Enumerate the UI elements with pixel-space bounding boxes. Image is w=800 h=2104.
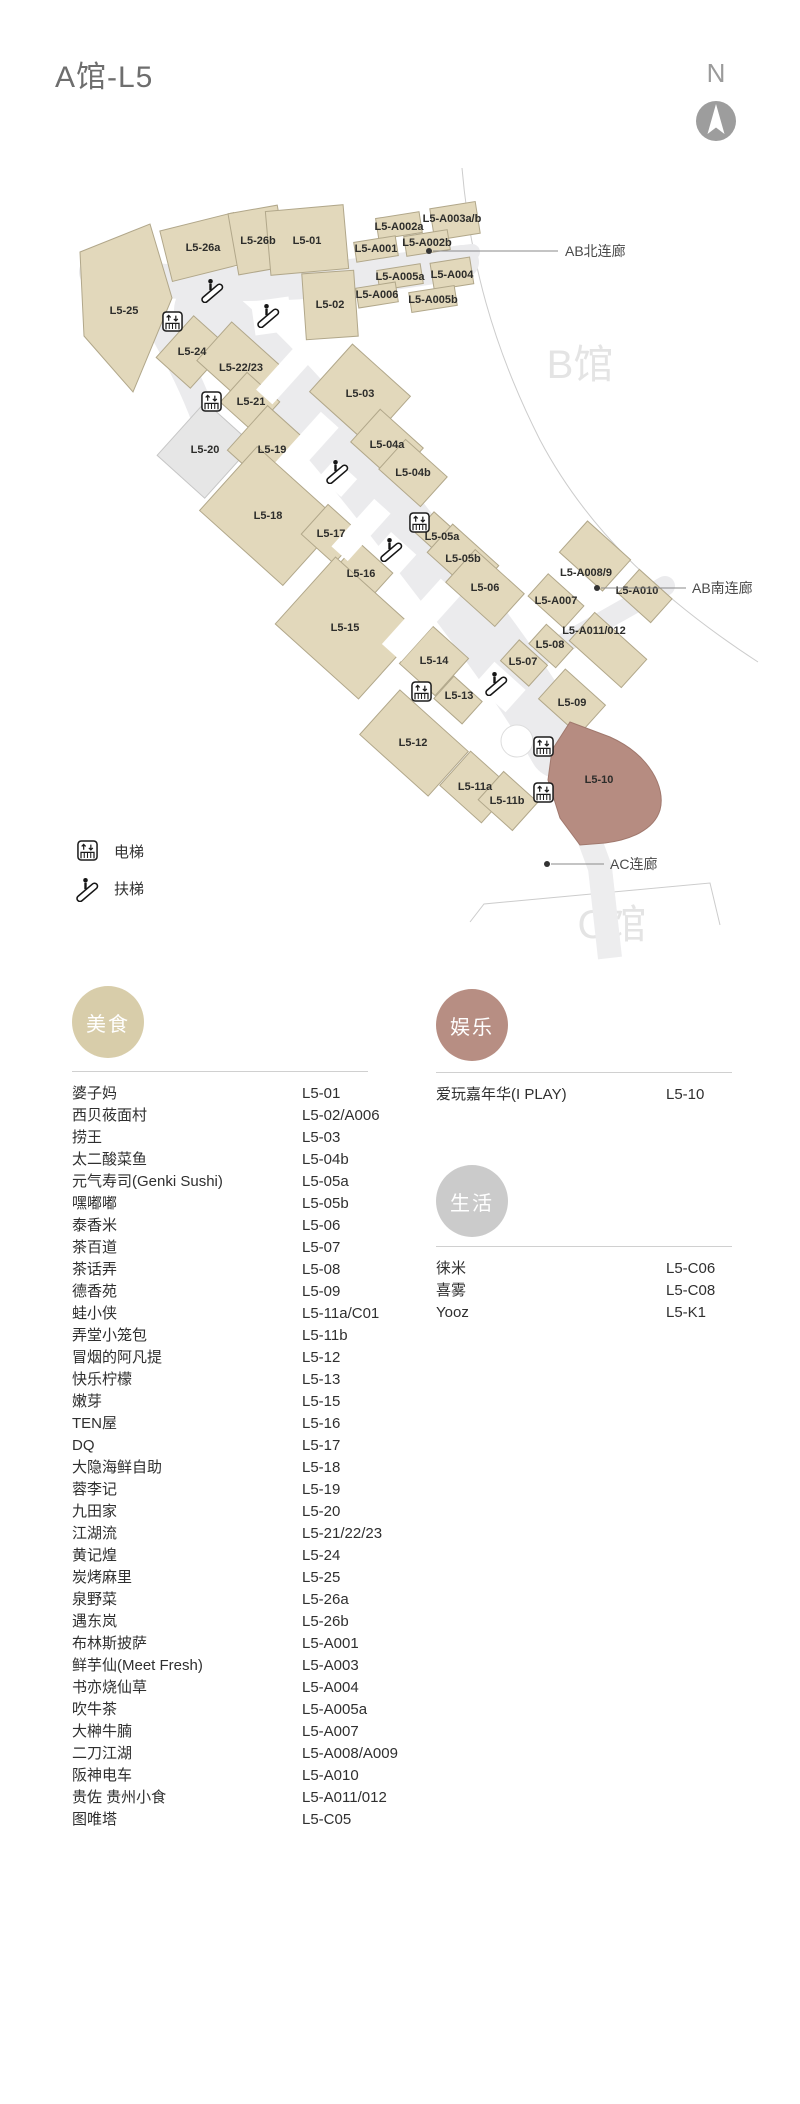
svg-text:L5-A007: L5-A007 xyxy=(535,595,578,607)
legend-elevator-label: 电梯 xyxy=(114,844,144,861)
category-badge-entertainment: 娱乐 xyxy=(436,989,508,1061)
store-unit: L5-26b xyxy=(302,1611,349,1633)
store-name: 茶百道 xyxy=(72,1239,117,1256)
directory-row: 弄堂小笼包 L5-11b xyxy=(72,1325,368,1347)
svg-text:L5-A006: L5-A006 xyxy=(356,289,399,301)
directory-row: 黄记煌 L5-24 xyxy=(72,1545,368,1567)
store-name: 嘿嘟嘟 xyxy=(72,1195,117,1212)
store-unit: L5-15 xyxy=(302,1391,340,1413)
store-name: 阪神电车 xyxy=(72,1767,132,1784)
store-name: 婆子妈 xyxy=(72,1085,117,1102)
legend-escalator-label: 扶梯 xyxy=(114,881,144,898)
svg-text:L5-19: L5-19 xyxy=(258,444,287,456)
store-name: 黄记煌 xyxy=(72,1547,117,1564)
store-name: 快乐柠檬 xyxy=(72,1371,132,1388)
svg-text:L5-01: L5-01 xyxy=(293,235,322,247)
directory-row: 嫩芽 L5-15 xyxy=(72,1391,368,1413)
store-unit: L5-A001 xyxy=(302,1633,359,1655)
directory-row: 蛙小侠 L5-11a/C01 xyxy=(72,1303,368,1325)
svg-text:L5-22/23: L5-22/23 xyxy=(219,362,263,374)
store-name: 德香苑 xyxy=(72,1283,117,1300)
directory-row: 鲜芋仙(Meet Fresh) L5-A003 xyxy=(72,1655,368,1677)
svg-text:L5-04a: L5-04a xyxy=(370,439,406,451)
divider xyxy=(436,1072,732,1073)
svg-text:L5-26b: L5-26b xyxy=(240,235,276,247)
store-name: 鲜芋仙(Meet Fresh) xyxy=(72,1657,203,1674)
svg-text:L5-11b: L5-11b xyxy=(490,795,525,807)
directory-row: 西贝莜面村 L5-02/A006 xyxy=(72,1105,368,1127)
store-unit: L5-03 xyxy=(302,1127,340,1149)
svg-text:L5-24: L5-24 xyxy=(178,346,208,358)
store-name: 大隐海鲜自助 xyxy=(72,1459,162,1476)
ac-link-label: AC连廊 xyxy=(610,856,657,872)
map-legend: 电梯 扶梯 xyxy=(78,841,144,899)
directory-row: 二刀江湖 L5-A008/A009 xyxy=(72,1743,368,1765)
directory-row: 吹牛茶 L5-A005a xyxy=(72,1699,368,1721)
store-name: 茶话弄 xyxy=(72,1261,117,1278)
store-name: 书亦烧仙草 xyxy=(72,1679,147,1696)
directory-row: TEN屋 L5-16 xyxy=(72,1413,368,1435)
directory-row: 阪神电车 L5-A010 xyxy=(72,1765,368,1787)
store-unit: L5-A003 xyxy=(302,1655,359,1677)
svg-text:L5-16: L5-16 xyxy=(347,568,376,580)
directory-row: 嘿嘟嘟 L5-05b xyxy=(72,1193,368,1215)
store-unit: L5-10 xyxy=(666,1084,704,1106)
svg-text:L5-20: L5-20 xyxy=(191,444,220,456)
directory-row: 婆子妈 L5-01 xyxy=(72,1083,368,1105)
store-name: 冒烟的阿凡提 xyxy=(72,1349,162,1366)
svg-text:L5-10: L5-10 xyxy=(585,774,614,786)
store-unit: L5-19 xyxy=(302,1479,340,1501)
store-unit: L5-05b xyxy=(302,1193,349,1215)
store-name: 泰香米 xyxy=(72,1217,117,1234)
legend-escalator-icon xyxy=(80,878,95,899)
svg-text:L5-14: L5-14 xyxy=(420,655,450,667)
svg-text:L5-09: L5-09 xyxy=(558,697,587,709)
floor-directory-page: A馆-L5 N B馆 xyxy=(0,0,800,2104)
store-name: 大榊牛腩 xyxy=(72,1723,132,1740)
store-unit: L5-21/22/23 xyxy=(302,1523,382,1545)
store-unit: L5-C08 xyxy=(666,1280,715,1302)
directory-row: 泉野菜 L5-26a xyxy=(72,1589,368,1611)
svg-text:L5-15: L5-15 xyxy=(331,622,360,634)
directory-row: 快乐柠檬 L5-13 xyxy=(72,1369,368,1391)
svg-text:L5-A001: L5-A001 xyxy=(355,243,398,255)
directory-row: 徕米 L5-C06 xyxy=(436,1258,732,1280)
store-unit: L5-05a xyxy=(302,1171,349,1193)
svg-text:L5-17: L5-17 xyxy=(317,528,346,540)
svg-text:L5-07: L5-07 xyxy=(509,656,538,668)
store-name: TEN屋 xyxy=(72,1415,117,1432)
store-unit: L5-16 xyxy=(302,1413,340,1435)
store-unit: L5-02/A006 xyxy=(302,1105,380,1127)
store-name: 爱玩嘉年华(I PLAY) xyxy=(436,1086,567,1103)
directory-row: Yooz L5-K1 xyxy=(436,1302,732,1324)
ab-north-link-label: AB北连廊 xyxy=(565,243,626,259)
store-name: 江湖流 xyxy=(72,1525,117,1542)
directory-row: 太二酸菜鱼 L5-04b xyxy=(72,1149,368,1171)
store-name: 布林斯披萨 xyxy=(72,1635,147,1652)
store-name: 吹牛茶 xyxy=(72,1701,117,1718)
store-unit: L5-A008/A009 xyxy=(302,1743,398,1765)
svg-text:L5-03: L5-03 xyxy=(346,388,375,400)
ab-south-link-label: AB南连廊 xyxy=(692,580,753,596)
svg-text:L5-21: L5-21 xyxy=(237,396,266,408)
store-unit: L5-A011/012 xyxy=(302,1787,387,1809)
directory-row: 喜雾 L5-C08 xyxy=(436,1280,732,1302)
store-unit: L5-09 xyxy=(302,1281,340,1303)
store-unit: L5-06 xyxy=(302,1215,340,1237)
store-name: 西贝莜面村 xyxy=(72,1107,147,1124)
store-name: 图唯塔 xyxy=(72,1811,117,1828)
svg-text:L5-18: L5-18 xyxy=(254,510,283,522)
directory-row: 德香苑 L5-09 xyxy=(72,1281,368,1303)
svg-text:L5-A002b: L5-A002b xyxy=(402,237,452,249)
store-unit: L5-13 xyxy=(302,1369,340,1391)
svg-text:L5-A002a: L5-A002a xyxy=(375,221,425,233)
directory-row: 泰香米 L5-06 xyxy=(72,1215,368,1237)
directory-row: 蓉李记 L5-19 xyxy=(72,1479,368,1501)
elevator-icon xyxy=(534,783,553,802)
divider xyxy=(72,1071,368,1072)
compass: N xyxy=(696,58,736,141)
entertainment-list: 爱玩嘉年华(I PLAY) L5-10 xyxy=(436,1084,732,1106)
legend-elevator-icon xyxy=(78,841,97,860)
svg-text:L5-12: L5-12 xyxy=(399,737,428,749)
svg-text:L5-13: L5-13 xyxy=(445,690,474,702)
directory-section-food: 美食 婆子妈 L5-01 西贝莜面村 L5-02/A006 捞王 L5-03 xyxy=(72,986,368,1831)
directory-row: 布林斯披萨 L5-A001 xyxy=(72,1633,368,1655)
store-unit: L5-C05 xyxy=(302,1809,351,1831)
store-unit: L5-24 xyxy=(302,1545,340,1567)
store-name: 九田家 xyxy=(72,1503,117,1520)
svg-text:L5-A010: L5-A010 xyxy=(616,585,659,597)
store-name: 泉野菜 xyxy=(72,1591,117,1608)
elevator-icon xyxy=(410,513,429,532)
store-name: 蓉李记 xyxy=(72,1481,117,1498)
directory-row: 书亦烧仙草 L5-A004 xyxy=(72,1677,368,1699)
directory-row: 江湖流 L5-21/22/23 xyxy=(72,1523,368,1545)
svg-text:L5-A003a/b: L5-A003a/b xyxy=(423,213,482,225)
store-unit: L5-17 xyxy=(302,1435,340,1457)
store-unit: L5-11a/C01 xyxy=(302,1303,379,1325)
svg-text:L5-A005a: L5-A005a xyxy=(376,271,426,283)
store-unit: L5-11b xyxy=(302,1325,348,1347)
food-list: 婆子妈 L5-01 西贝莜面村 L5-02/A006 捞王 L5-03 太二酸菜… xyxy=(72,1083,368,1831)
store-unit: L5-26a xyxy=(302,1589,349,1611)
store-name: 嫩芽 xyxy=(72,1393,102,1410)
elevator-icon xyxy=(202,392,221,411)
store-name: 蛙小侠 xyxy=(72,1305,117,1322)
category-badge-life: 生活 xyxy=(436,1165,508,1237)
store-name: 二刀江湖 xyxy=(72,1745,132,1762)
svg-text:L5-A011/012: L5-A011/012 xyxy=(562,625,626,637)
directory-row: 爱玩嘉年华(I PLAY) L5-10 xyxy=(436,1084,732,1106)
floor-map: N B馆 C馆 xyxy=(0,0,800,960)
elevator-icon xyxy=(163,312,182,331)
store-name: 太二酸菜鱼 xyxy=(72,1151,147,1168)
svg-text:L5-A004: L5-A004 xyxy=(431,269,475,281)
directory-row: 遇东岚 L5-26b xyxy=(72,1611,368,1633)
divider xyxy=(436,1246,732,1247)
directory-row: DQ L5-17 xyxy=(72,1435,368,1457)
store-unit: L5-C06 xyxy=(666,1258,715,1280)
svg-text:L5-05b: L5-05b xyxy=(445,553,481,565)
category-badge-food: 美食 xyxy=(72,986,144,1058)
directory-row: 图唯塔 L5-C05 xyxy=(72,1809,368,1831)
directory-row: 九田家 L5-20 xyxy=(72,1501,368,1523)
store-unit: L5-20 xyxy=(302,1501,340,1523)
compass-n-label: N xyxy=(707,58,726,88)
directory-row: 元气寿司(Genki Sushi) L5-05a xyxy=(72,1171,368,1193)
svg-text:L5-04b: L5-04b xyxy=(395,467,431,479)
store-name: 弄堂小笼包 xyxy=(72,1327,147,1344)
directory-row: 贵佐 贵州小食 L5-A011/012 xyxy=(72,1787,368,1809)
svg-text:L5-05a: L5-05a xyxy=(425,531,461,543)
store-name: 元气寿司(Genki Sushi) xyxy=(72,1173,223,1190)
store-name: Yooz xyxy=(436,1304,469,1321)
store-unit: L5-01 xyxy=(302,1083,340,1105)
directory-row: 大隐海鲜自助 L5-18 xyxy=(72,1457,368,1479)
store-unit: L5-04b xyxy=(302,1149,349,1171)
elevator-icon xyxy=(412,682,431,701)
store-name: 捞王 xyxy=(72,1129,102,1146)
svg-text:L5-A005b: L5-A005b xyxy=(408,294,458,306)
svg-text:L5-06: L5-06 xyxy=(471,582,500,594)
directory-section-life: 生活 徕米 L5-C06 喜雾 L5-C08 Yooz L5-K1 xyxy=(436,1165,732,1324)
elevator-icon xyxy=(534,737,553,756)
store-unit: L5-K1 xyxy=(666,1302,706,1324)
store-unit: L5-A007 xyxy=(302,1721,359,1743)
store-unit: L5-08 xyxy=(302,1259,340,1281)
store-unit: L5-12 xyxy=(302,1347,340,1369)
map-unit-l5-a008-9[interactable] xyxy=(559,521,630,591)
store-unit: L5-25 xyxy=(302,1567,340,1589)
life-list: 徕米 L5-C06 喜雾 L5-C08 Yooz L5-K1 xyxy=(436,1258,732,1324)
store-unit: L5-A005a xyxy=(302,1699,367,1721)
directory-row: 冒烟的阿凡提 L5-12 xyxy=(72,1347,368,1369)
svg-text:L5-02: L5-02 xyxy=(316,299,345,311)
directory-row: 炭烤麻里 L5-25 xyxy=(72,1567,368,1589)
store-name: 遇东岚 xyxy=(72,1613,117,1630)
directory-row: 茶话弄 L5-08 xyxy=(72,1259,368,1281)
directory-section-entertainment: 娱乐 爱玩嘉年华(I PLAY) L5-10 xyxy=(436,989,732,1106)
store-name: 喜雾 xyxy=(436,1282,466,1299)
store-name: DQ xyxy=(72,1437,95,1454)
building-b-watermark: B馆 xyxy=(547,343,614,387)
directory-row: 大榊牛腩 L5-A007 xyxy=(72,1721,368,1743)
svg-text:L5-25: L5-25 xyxy=(110,305,139,317)
svg-text:L5-A008/9: L5-A008/9 xyxy=(560,567,612,579)
store-name: 贵佐 贵州小食 xyxy=(72,1789,166,1806)
store-unit: L5-A010 xyxy=(302,1765,359,1787)
directory-row: 捞王 L5-03 xyxy=(72,1127,368,1149)
store-name: 徕米 xyxy=(436,1260,466,1277)
store-name: 炭烤麻里 xyxy=(72,1569,132,1586)
svg-text:L5-26a: L5-26a xyxy=(186,242,222,254)
svg-text:L5-08: L5-08 xyxy=(536,639,565,651)
store-unit: L5-A004 xyxy=(302,1677,359,1699)
svg-text:L5-11a: L5-11a xyxy=(458,781,493,793)
directory-row: 茶百道 L5-07 xyxy=(72,1237,368,1259)
store-unit: L5-07 xyxy=(302,1237,340,1259)
store-unit: L5-18 xyxy=(302,1457,340,1479)
